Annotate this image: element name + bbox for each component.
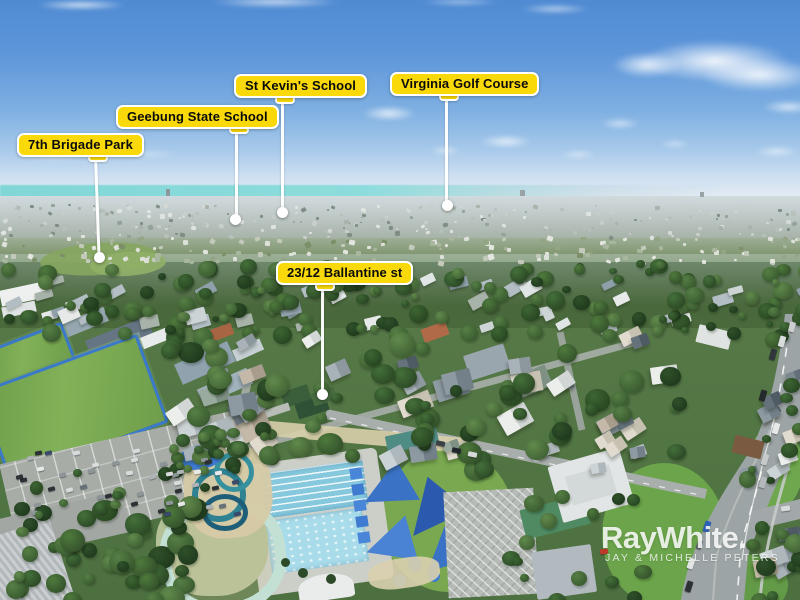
tree [6,580,25,598]
speck [408,244,414,250]
tree [330,393,342,403]
tree [105,264,119,276]
car [191,482,199,487]
speck [577,253,583,258]
speck [782,255,786,259]
label-property-address: 23/12 Ballantine st [276,261,413,285]
tree [30,481,44,495]
speck [253,220,256,223]
leader-line-geebung-state-school [235,127,238,220]
tree [86,311,104,326]
tree [83,297,99,310]
speck [716,214,720,217]
tree [110,500,121,510]
tree [513,373,535,394]
tree [187,406,210,427]
speck [257,251,263,257]
tree [609,268,616,274]
tree [708,303,718,312]
label-geebung-state-school: Geebung State School [116,105,279,129]
distant-building [700,192,704,197]
raywhite-logo: RayWhite. [601,520,746,556]
speck [334,256,337,259]
tree [178,274,193,289]
tree [605,576,619,588]
tree [265,374,290,396]
tree [785,534,800,553]
tree [16,527,28,538]
tree [512,557,523,566]
tree [612,493,625,505]
tree [175,565,189,577]
tree [746,539,760,551]
tree [781,443,799,457]
speck [623,256,628,260]
location-dot-virginia-golf-course [442,200,453,211]
tree [767,591,778,600]
tree [636,260,645,268]
speck [544,255,549,260]
tree [780,393,793,403]
tree [305,420,321,433]
speck [440,255,444,259]
speck [265,241,270,246]
speck [410,216,413,219]
location-dot-geebung-state-school [230,214,241,225]
speck [18,216,21,219]
tree [729,306,737,313]
tree [82,543,97,558]
tree [242,409,256,421]
tree [213,449,224,460]
tree [627,591,642,600]
location-dot-st-kevins-school [277,207,288,218]
tree [374,387,395,404]
tree [632,312,646,326]
tree [659,316,666,322]
speck [144,258,149,263]
speck [501,223,505,227]
speck [55,224,59,228]
leader-line-virginia-golf-course [445,94,448,206]
distant-building [166,189,170,196]
tree [485,402,501,417]
tree [209,370,232,388]
tree [112,491,123,500]
speck [778,209,782,213]
tree [672,397,687,410]
tree [685,287,704,303]
tree [540,513,557,528]
tree [42,324,60,342]
palm-tree [298,568,308,578]
aerial-photo: 7th Brigade Park Geebung State School St… [0,0,800,600]
speck [81,254,87,259]
speck [81,235,85,238]
speck [375,224,380,228]
tree [435,311,448,324]
tree [273,326,292,343]
tree [364,349,383,366]
tree [178,342,204,363]
speck [785,213,789,216]
tree [548,593,566,600]
tree [356,324,367,333]
tree [158,273,166,280]
palm-tree [281,558,290,567]
speck [67,237,71,241]
tree [619,370,645,393]
tree [317,433,343,455]
speck [292,251,296,255]
speck [86,259,90,263]
tree [105,305,119,318]
cabana [351,483,364,496]
tree [660,367,680,386]
speck [88,203,92,207]
speck [159,214,164,219]
speck [157,225,161,228]
tree [259,446,279,465]
tree [573,295,590,309]
building-roof [531,544,597,600]
tree [792,423,800,435]
tree [656,261,665,269]
tree [260,432,269,441]
tree [73,469,82,478]
speck [522,216,525,219]
cabana [355,515,368,528]
tree [613,275,624,284]
tree [466,418,486,436]
speck [595,205,598,207]
tree [411,427,433,446]
tree [212,316,219,322]
speck [15,207,19,210]
tree [66,301,76,311]
speck [327,209,329,211]
speck [582,226,586,229]
tree [356,294,368,304]
tree [198,261,215,277]
tree [125,513,151,536]
leader-line-st-kevins-school [281,97,284,213]
speck [356,250,361,255]
tree [471,281,482,291]
tree [652,326,663,336]
speck [119,234,121,236]
speck [205,205,209,209]
tree [613,406,632,422]
tree [161,343,178,360]
tree [420,401,430,410]
tree [232,442,246,455]
speck [479,214,483,218]
tree [414,342,430,355]
speck [588,229,591,232]
tree [198,432,209,442]
tree [755,521,770,535]
tree [225,303,237,315]
speck [11,254,17,260]
speck [39,207,42,210]
tree [127,533,143,546]
speck [586,212,591,216]
cabana [349,467,362,480]
tree [194,446,204,454]
water-slide [202,494,248,531]
speck [130,224,134,228]
tree [611,391,629,407]
speck [135,211,138,214]
tree [38,275,53,290]
tree [669,271,682,283]
tree [94,283,110,299]
label-7th-brigade-park: 7th Brigade Park [17,133,144,157]
speck [40,223,44,227]
tree [118,327,132,340]
tree [401,300,409,307]
tree [227,428,240,438]
location-dot-property [317,389,328,400]
tree [450,385,462,397]
tree [474,461,494,478]
tree [460,325,478,341]
tree [117,561,129,571]
tree [748,466,757,474]
tree [738,312,746,319]
speck [184,259,190,263]
tree [703,275,716,287]
tree [585,403,599,416]
speck [786,219,791,224]
tree [525,439,550,460]
tree [531,277,543,287]
speck [470,216,474,220]
speck [738,246,742,250]
speck [233,257,238,261]
tree [14,502,30,516]
tree [513,408,527,419]
tree [282,295,299,309]
tree [59,499,68,507]
tree [411,293,419,300]
palm-tree [326,574,336,584]
tree [727,327,741,340]
distant-building [520,190,525,196]
speck [724,215,727,218]
tree [593,301,607,313]
agents-names: JAY & MICHELLE PETERS [605,552,780,564]
tree [766,321,773,327]
tree [627,494,640,506]
speck [182,240,188,246]
tree [546,291,565,310]
label-st-kevins-school: St Kevin's School [234,74,367,98]
car [125,470,133,475]
speck [419,206,422,209]
tree [524,495,544,511]
cabana [353,499,366,512]
tree [510,266,528,283]
tree [14,571,25,582]
speck [171,237,174,240]
tree [202,339,219,354]
tree [1,263,16,277]
tree [587,508,599,520]
tree [289,437,311,457]
tree [178,545,199,565]
tree [555,490,570,504]
location-dot-7th-brigade-park [94,252,105,263]
tree [484,282,496,294]
tree [552,422,572,440]
tree [521,304,540,320]
speck [560,207,564,211]
tree [668,312,677,320]
speck [482,239,489,245]
speck [78,243,84,248]
car [166,471,174,476]
speck [30,204,34,207]
speck [727,219,732,223]
tree [46,574,65,592]
tree [20,310,38,324]
speck [633,219,636,221]
tree [766,477,775,484]
tree [520,574,529,583]
speck [139,225,143,229]
tree [177,312,189,322]
tree [389,332,415,357]
tree [95,502,107,514]
cabana [357,531,370,544]
leader-line-property [321,283,324,395]
speck [236,250,242,255]
tree [519,535,535,550]
tree [745,291,759,305]
speck [751,233,754,236]
label-virginia-golf-course: Virginia Golf Course [390,72,539,96]
tree [169,444,179,454]
tree [125,307,141,320]
speck [584,253,590,258]
speck [450,230,454,234]
tree [786,405,798,416]
